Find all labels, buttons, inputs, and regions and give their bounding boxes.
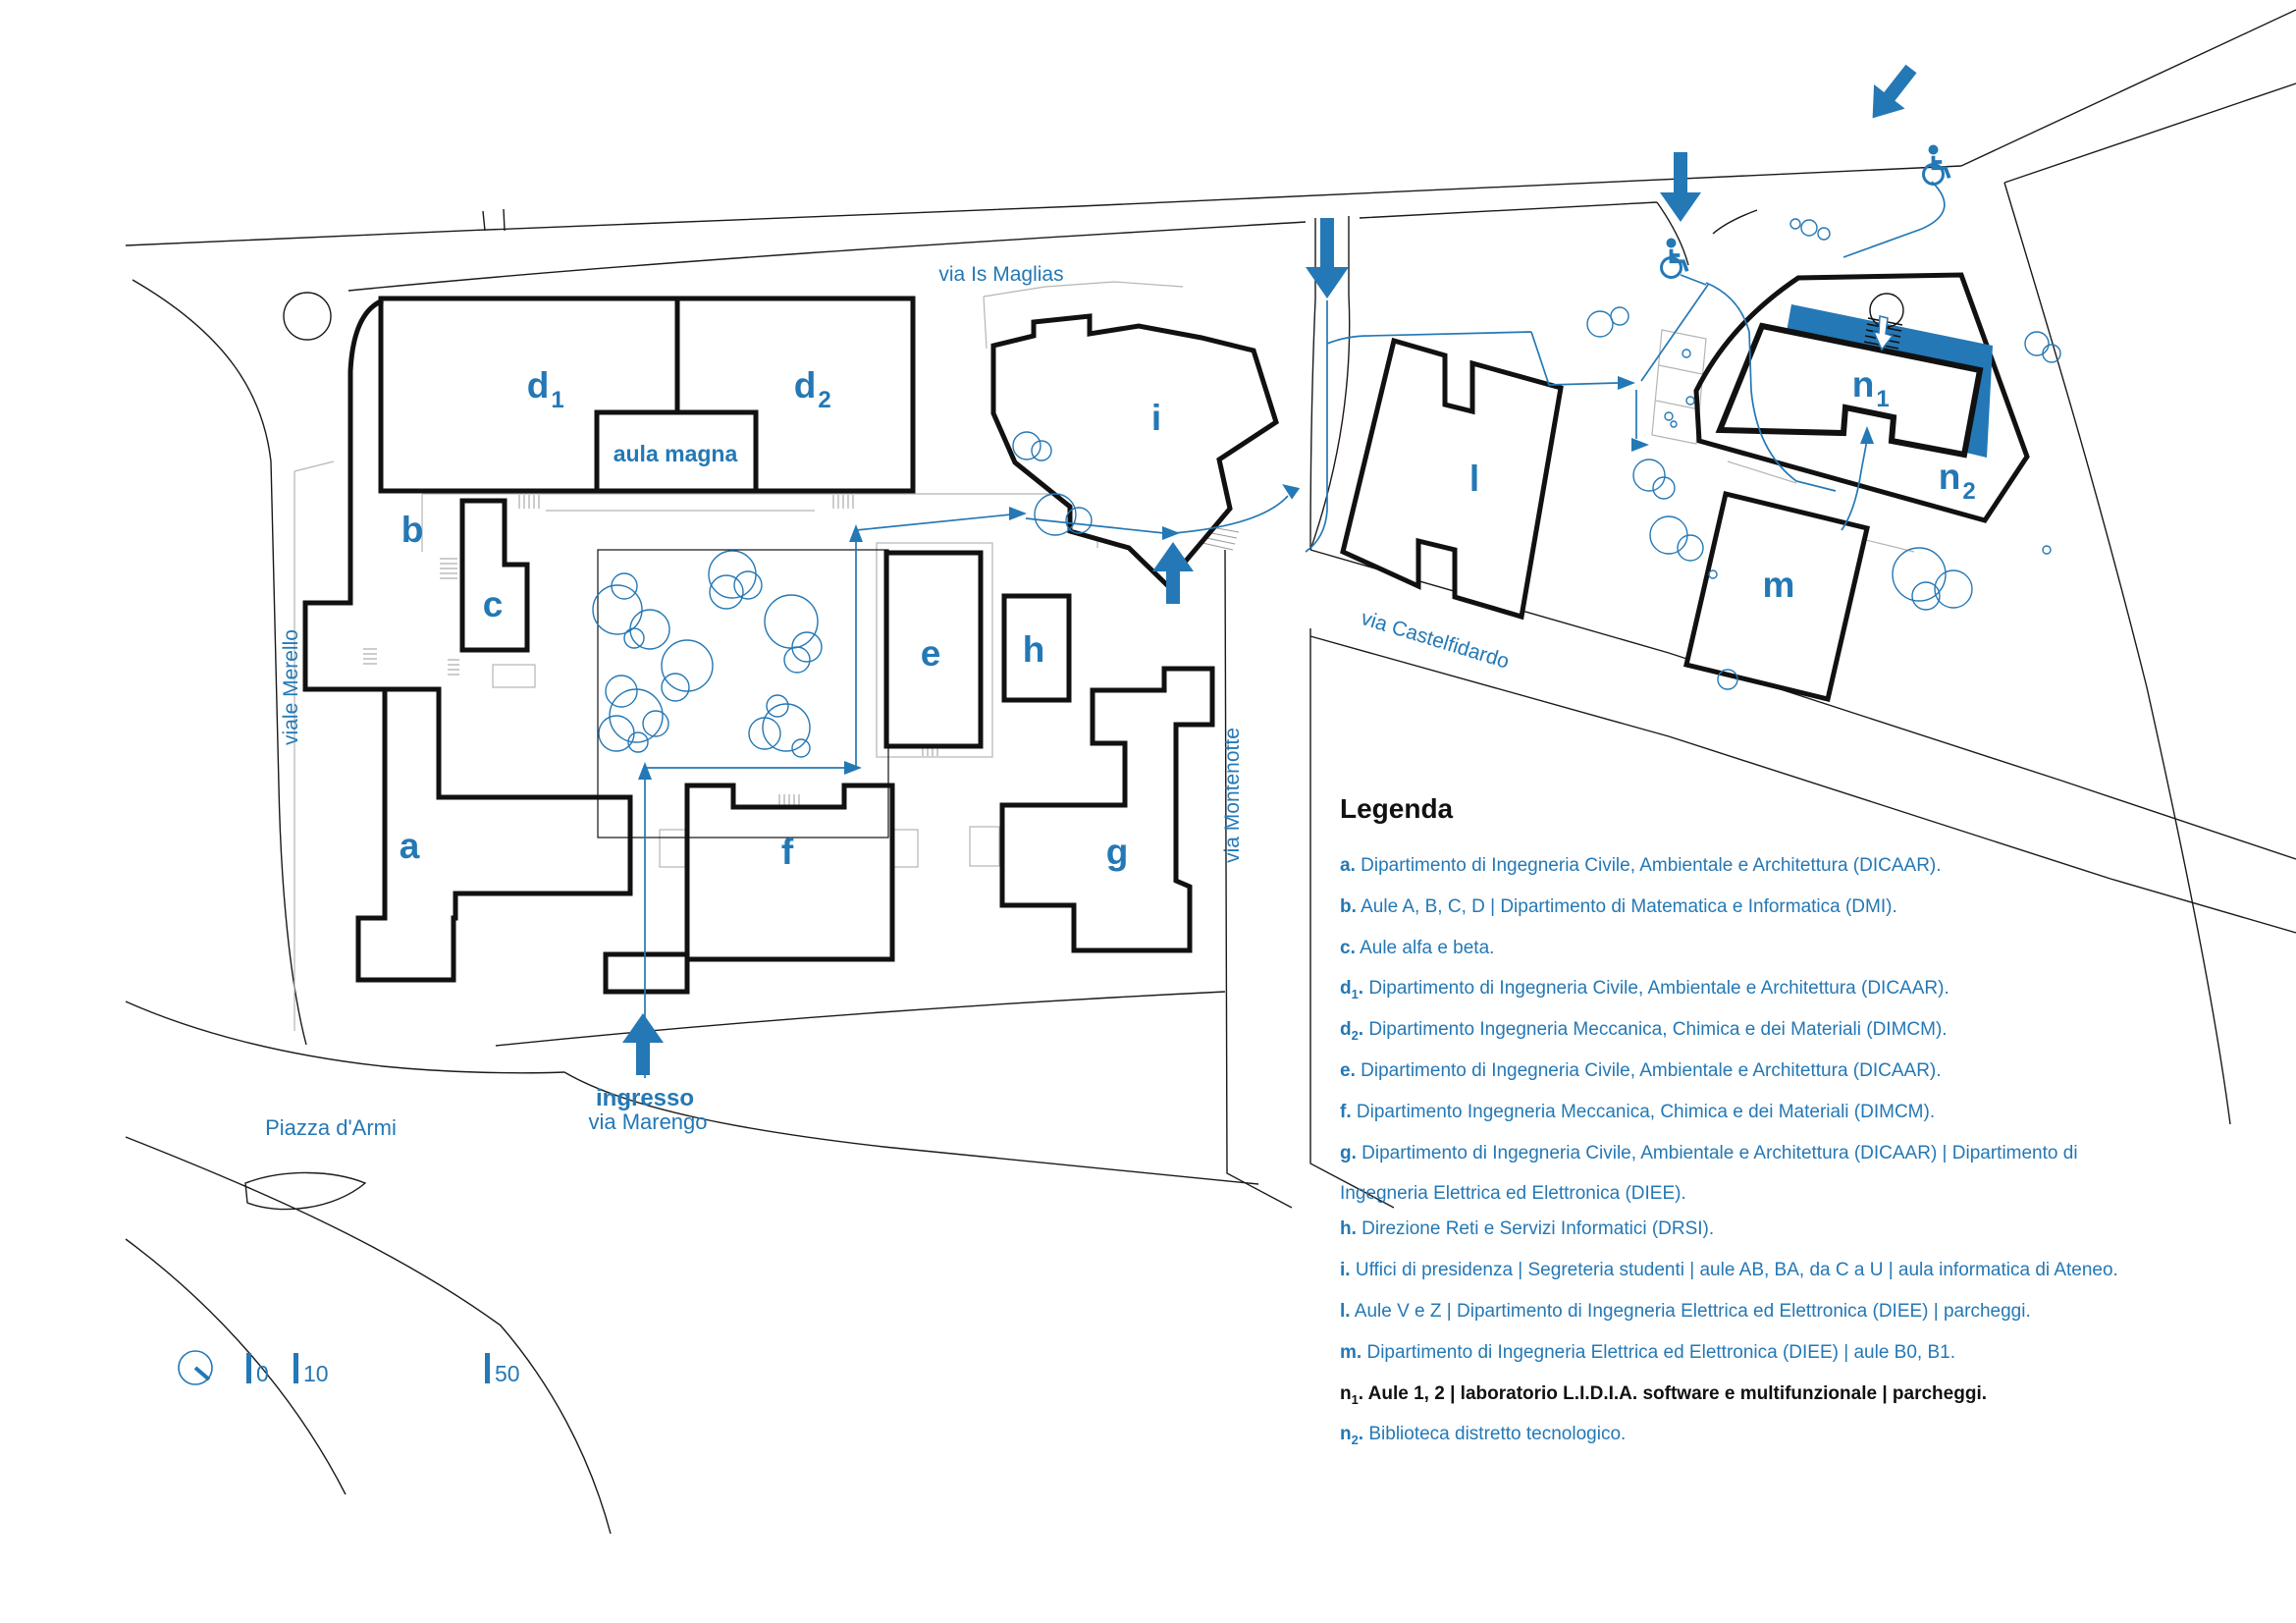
road-topright-diag2 — [2004, 83, 2296, 183]
label-viale-merello: viale Merello — [280, 629, 302, 745]
parcel-merello-inner — [294, 461, 334, 1031]
label-building-b: b — [401, 510, 424, 550]
legend-item-m: m. Dipartimento di Ingegneria Elettrica … — [1340, 1335, 2253, 1377]
building-l — [1343, 341, 1561, 617]
road-topright-diag1 — [1961, 10, 2296, 166]
label-building-g: g — [1106, 832, 1129, 872]
label-building-a: a — [400, 826, 420, 866]
road-piazza-curve1 — [126, 1001, 564, 1073]
entrance-arrow-icon-northeast — [1857, 57, 1927, 131]
legend-item-n1: n1. Aule 1, 2 | laboratorio L.I.D.I.A. s… — [1340, 1377, 2253, 1418]
road-marengo-upper — [496, 992, 1225, 1046]
legend-item-n2: n2. Biblioteca distretto tecnologico. — [1340, 1417, 2253, 1458]
road-piazza-island — [245, 1172, 365, 1209]
legend-item-g: g. Dipartimento di Ingegneria Civile, Am… — [1340, 1136, 2253, 1213]
label-via-is-maglias: via Is Maglias — [938, 263, 1063, 286]
scale-label-10: 10 — [303, 1361, 329, 1386]
building-f — [687, 785, 892, 959]
label-via-castelfidardo: via Castelfidardo — [1359, 607, 1512, 674]
label-ingresso: ingresso — [596, 1085, 694, 1111]
label-building-d1: d — [527, 365, 550, 406]
label-building-d2: d — [794, 365, 817, 406]
legend-item-h: h. Direzione Reti e Servizi Informatici … — [1340, 1212, 2253, 1253]
scale-label-50: 50 — [495, 1361, 520, 1386]
label-via-montenotte: via Montenotte — [1221, 728, 1244, 863]
label-aula-magna: aula magna — [614, 441, 738, 466]
wheelchair-icon — [1924, 145, 1949, 185]
compass-needle — [195, 1368, 209, 1380]
label-building-i: i — [1151, 398, 1161, 438]
legend-item-c: c. Aule alfa e beta. — [1340, 931, 2253, 972]
label-building-h: h — [1023, 629, 1045, 670]
roundabout-circle — [284, 293, 331, 340]
connector-f-left — [660, 830, 685, 867]
scale-tick-10 — [294, 1353, 298, 1383]
scale-tick-0 — [246, 1353, 251, 1383]
stairs-icon — [448, 660, 459, 675]
label-building-m: m — [1763, 565, 1795, 605]
stairs-icon — [440, 559, 457, 578]
wheelchair-icon — [1662, 239, 1687, 278]
legend-item-f: f. Dipartimento Ingegneria Meccanica, Ch… — [1340, 1095, 2253, 1136]
entrance-arrow-icon-north — [1660, 152, 1701, 222]
legend-item-i: i. Uffici di presidenza | Segreteria stu… — [1340, 1253, 2253, 1294]
entrance-arrow-icon-marengo — [622, 1013, 664, 1075]
building-marengo-lodge — [606, 954, 687, 992]
stairs-icon — [779, 794, 799, 805]
label-building-d1-sub: 1 — [551, 387, 563, 413]
building-g — [1002, 669, 1212, 950]
label-building-e: e — [921, 633, 941, 674]
scale-tick-50 — [485, 1353, 490, 1383]
label-building-l: l — [1469, 459, 1479, 499]
legend-item-a: a. Dipartimento di Ingegneria Civile, Am… — [1340, 848, 2253, 890]
connector-g-left — [970, 827, 999, 866]
scale-bar: 0 10 50 — [179, 1351, 520, 1386]
building-b — [305, 300, 385, 689]
label-building-d2-sub: 2 — [818, 387, 830, 413]
scale-label-0: 0 — [256, 1361, 269, 1386]
label-via-marengo: via Marengo — [588, 1109, 707, 1134]
building-c — [462, 501, 527, 650]
legend-item-d1: d1. Dipartimento di Ingegneria Civile, A… — [1340, 971, 2253, 1012]
wheelchair-icons — [1662, 145, 1949, 278]
stairs-icon — [519, 495, 539, 509]
label-building-n2: n — [1939, 457, 1961, 497]
stairs-icon — [833, 495, 853, 509]
label-piazza-armi: Piazza d'Armi — [265, 1115, 397, 1140]
parcel-c-south — [493, 665, 535, 687]
label-building-n1-sub: 1 — [1876, 386, 1889, 412]
label-building-c: c — [483, 584, 504, 624]
legend-title: Legenda — [1340, 793, 2253, 825]
label-building-n1: n — [1852, 364, 1875, 405]
campus-map-page: { "map": { "streets": { "is_maglias": "v… — [0, 0, 2296, 1623]
legend-item-e: e. Dipartimento di Ingegneria Civile, Am… — [1340, 1054, 2253, 1095]
entrance-arrow-icon-montenotte-top — [1306, 218, 1349, 298]
stairs-icon — [363, 649, 377, 664]
road-top-stubs — [483, 209, 505, 231]
legend-panel: Legenda a. Dipartimento di Ingegneria Ci… — [1340, 793, 2253, 1458]
legend-item-l: l. Aule V e Z | Dipartimento di Ingegner… — [1340, 1294, 2253, 1335]
walkway-d-block — [422, 494, 1097, 552]
legend-item-d2: d2. Dipartimento Ingegneria Meccanica, C… — [1340, 1012, 2253, 1054]
legend-item-b: b. Aule A, B, C, D | Dipartimento di Mat… — [1340, 890, 2253, 931]
label-building-f: f — [781, 832, 794, 872]
connector-f-right — [892, 830, 918, 867]
road-piazza-curve2 — [126, 1137, 611, 1534]
label-building-n2-sub: 2 — [1962, 478, 1975, 505]
